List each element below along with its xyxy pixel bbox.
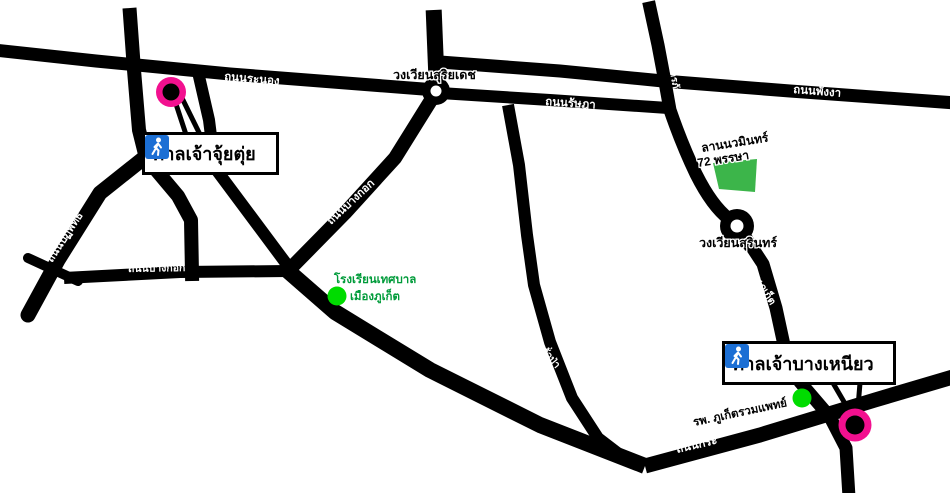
map-canvas: ถนนระนอง ถนนรัษฎา ถนนพังงา ถนนโกมารภัจจ์… xyxy=(0,0,950,493)
road-patiphat xyxy=(28,158,144,315)
bang-neow-marker xyxy=(839,409,872,442)
road-takuapa xyxy=(508,105,628,461)
roundabout-label-suriyadet: วงเวียนสุริยเดช xyxy=(393,68,476,83)
hospital-dot xyxy=(793,389,812,408)
road-ranong-phangnga-west xyxy=(0,50,436,90)
bang-neow-shrine-label-box: ศาลเจ้าบางเหนียว xyxy=(722,341,896,385)
road-label-bangkok-horizontal: ถนนบางกอก xyxy=(128,262,186,275)
pedestrian-icon xyxy=(145,135,169,159)
school-label-line2: เมืองภูเก็ต xyxy=(350,288,400,304)
jui-tui-shrine-label-box: ศาลเจ้าจุ้ยตุ่ย xyxy=(142,132,279,175)
pedestrian-icon xyxy=(725,344,749,368)
school-dot xyxy=(328,287,347,306)
road-label-bangkok-diagonal: ถนนบางกอก xyxy=(325,177,377,227)
school-label-line1: โรงเรียนเทศบาล xyxy=(333,271,416,286)
jui-tui-marker xyxy=(156,77,186,107)
phuket-shrine-map: ถนนระนอง ถนนรัษฎา ถนนพังงา ถนนโกมารภัจจ์… xyxy=(0,0,950,493)
roundabout-label-surin: วงเวียนสุรินทร์ xyxy=(699,235,777,251)
bang-neow-shrine-name: ศาลเจ้าบางเหนียว xyxy=(733,349,874,378)
